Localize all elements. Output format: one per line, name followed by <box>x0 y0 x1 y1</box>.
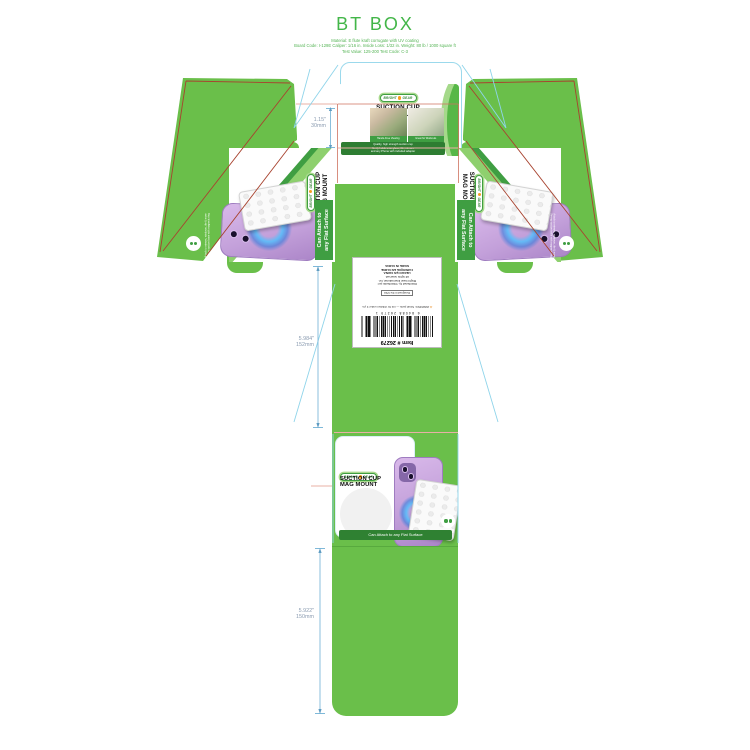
slogan-bar: Can Attach to any Flat Surface <box>315 200 333 260</box>
slogan-bar: Can Attach to any Flat Surface <box>339 530 452 540</box>
warning-line: ⚠ WARNING: Small parts — not for childre… <box>357 306 437 310</box>
flap-fine-print: Attach to mirrors, windows, tile & more … <box>205 210 214 262</box>
distributor-block: Distributed by / Distribuido por: Bright… <box>357 263 437 285</box>
photo-workout: Great for Workouts <box>408 108 445 142</box>
photo-selfie: Hands-Free Viewing <box>370 108 407 142</box>
logo-dot-icon <box>398 96 401 99</box>
spec-block: Material: E flute kraft corrugate with U… <box>0 38 750 54</box>
lifestyle-photos: Hands-Free Viewing Great for Workouts <box>370 108 444 142</box>
brand-logo: BRIGHTGEAR <box>307 175 315 212</box>
front-panel: BRIGHTGEAR SUCTION CUP MAG MOUNT Can Att… <box>332 432 458 546</box>
barcode <box>361 316 433 337</box>
left-side-panel: BRIGHTGEAR SUCTION CUP MAG MOUNT Can Att… <box>229 148 335 262</box>
flap-fine-print: Attach to mirrors, windows, tile & more … <box>547 210 556 262</box>
camera-lens-icon <box>408 473 415 480</box>
barcode-digits: 6 84088 26279 1 <box>357 312 437 316</box>
top-print-panel: BRIGHTGEAR SUCTION CUP MAG MOUNT Hands-F… <box>337 84 459 156</box>
item-number: Item # 26279 <box>357 339 437 345</box>
certification-emblem-icon <box>559 236 574 251</box>
camera-lens-icon <box>230 230 238 238</box>
dimension-label-middle: 5.984" 152mm <box>272 336 314 349</box>
brand-logo: BRIGHTGEAR <box>380 94 417 102</box>
dimension-label-top: 1.15" 30mm <box>286 117 326 130</box>
dieline-canvas: BT BOX Material: E flute kraft corrugate… <box>0 0 750 750</box>
logo-dot-icon <box>309 190 312 193</box>
warning-icon: ⚠ <box>430 306 433 310</box>
page-title: BT BOX <box>0 14 750 35</box>
origin-box: Designed in the USA <box>381 291 413 297</box>
spec-line: Test Value: 125-200 Test Code: C-3 <box>0 49 750 54</box>
right-side-panel: BRIGHTGEAR SUCTION CUP MAG MOUNT Can Att… <box>455 148 561 262</box>
feature-bar: Quality, high strength suction cup firml… <box>341 142 445 155</box>
panel-gap <box>334 156 458 184</box>
dimension-label-bottom: 5.922" 150mm <box>272 608 314 621</box>
slogan-text: Can Attach to any Flat Surface <box>457 200 475 260</box>
certification-emblem-icon <box>186 236 201 251</box>
certification-emblem-icon <box>441 514 455 528</box>
slogan-text: Can Attach to any Flat Surface <box>315 200 333 260</box>
back-panel <box>332 546 458 716</box>
product-title: SUCTION CUP MAG MOUNT <box>340 476 398 489</box>
camera-module <box>399 463 416 482</box>
camera-lens-icon <box>402 466 409 473</box>
slogan-bar: Can Attach to any Flat Surface <box>457 200 475 260</box>
logo-dot-icon <box>478 193 481 196</box>
brand-logo: BRIGHTGEAR <box>475 175 483 212</box>
back-label: Item # 26279 6 84088 26279 1 ⚠ WARNING: … <box>352 257 442 348</box>
